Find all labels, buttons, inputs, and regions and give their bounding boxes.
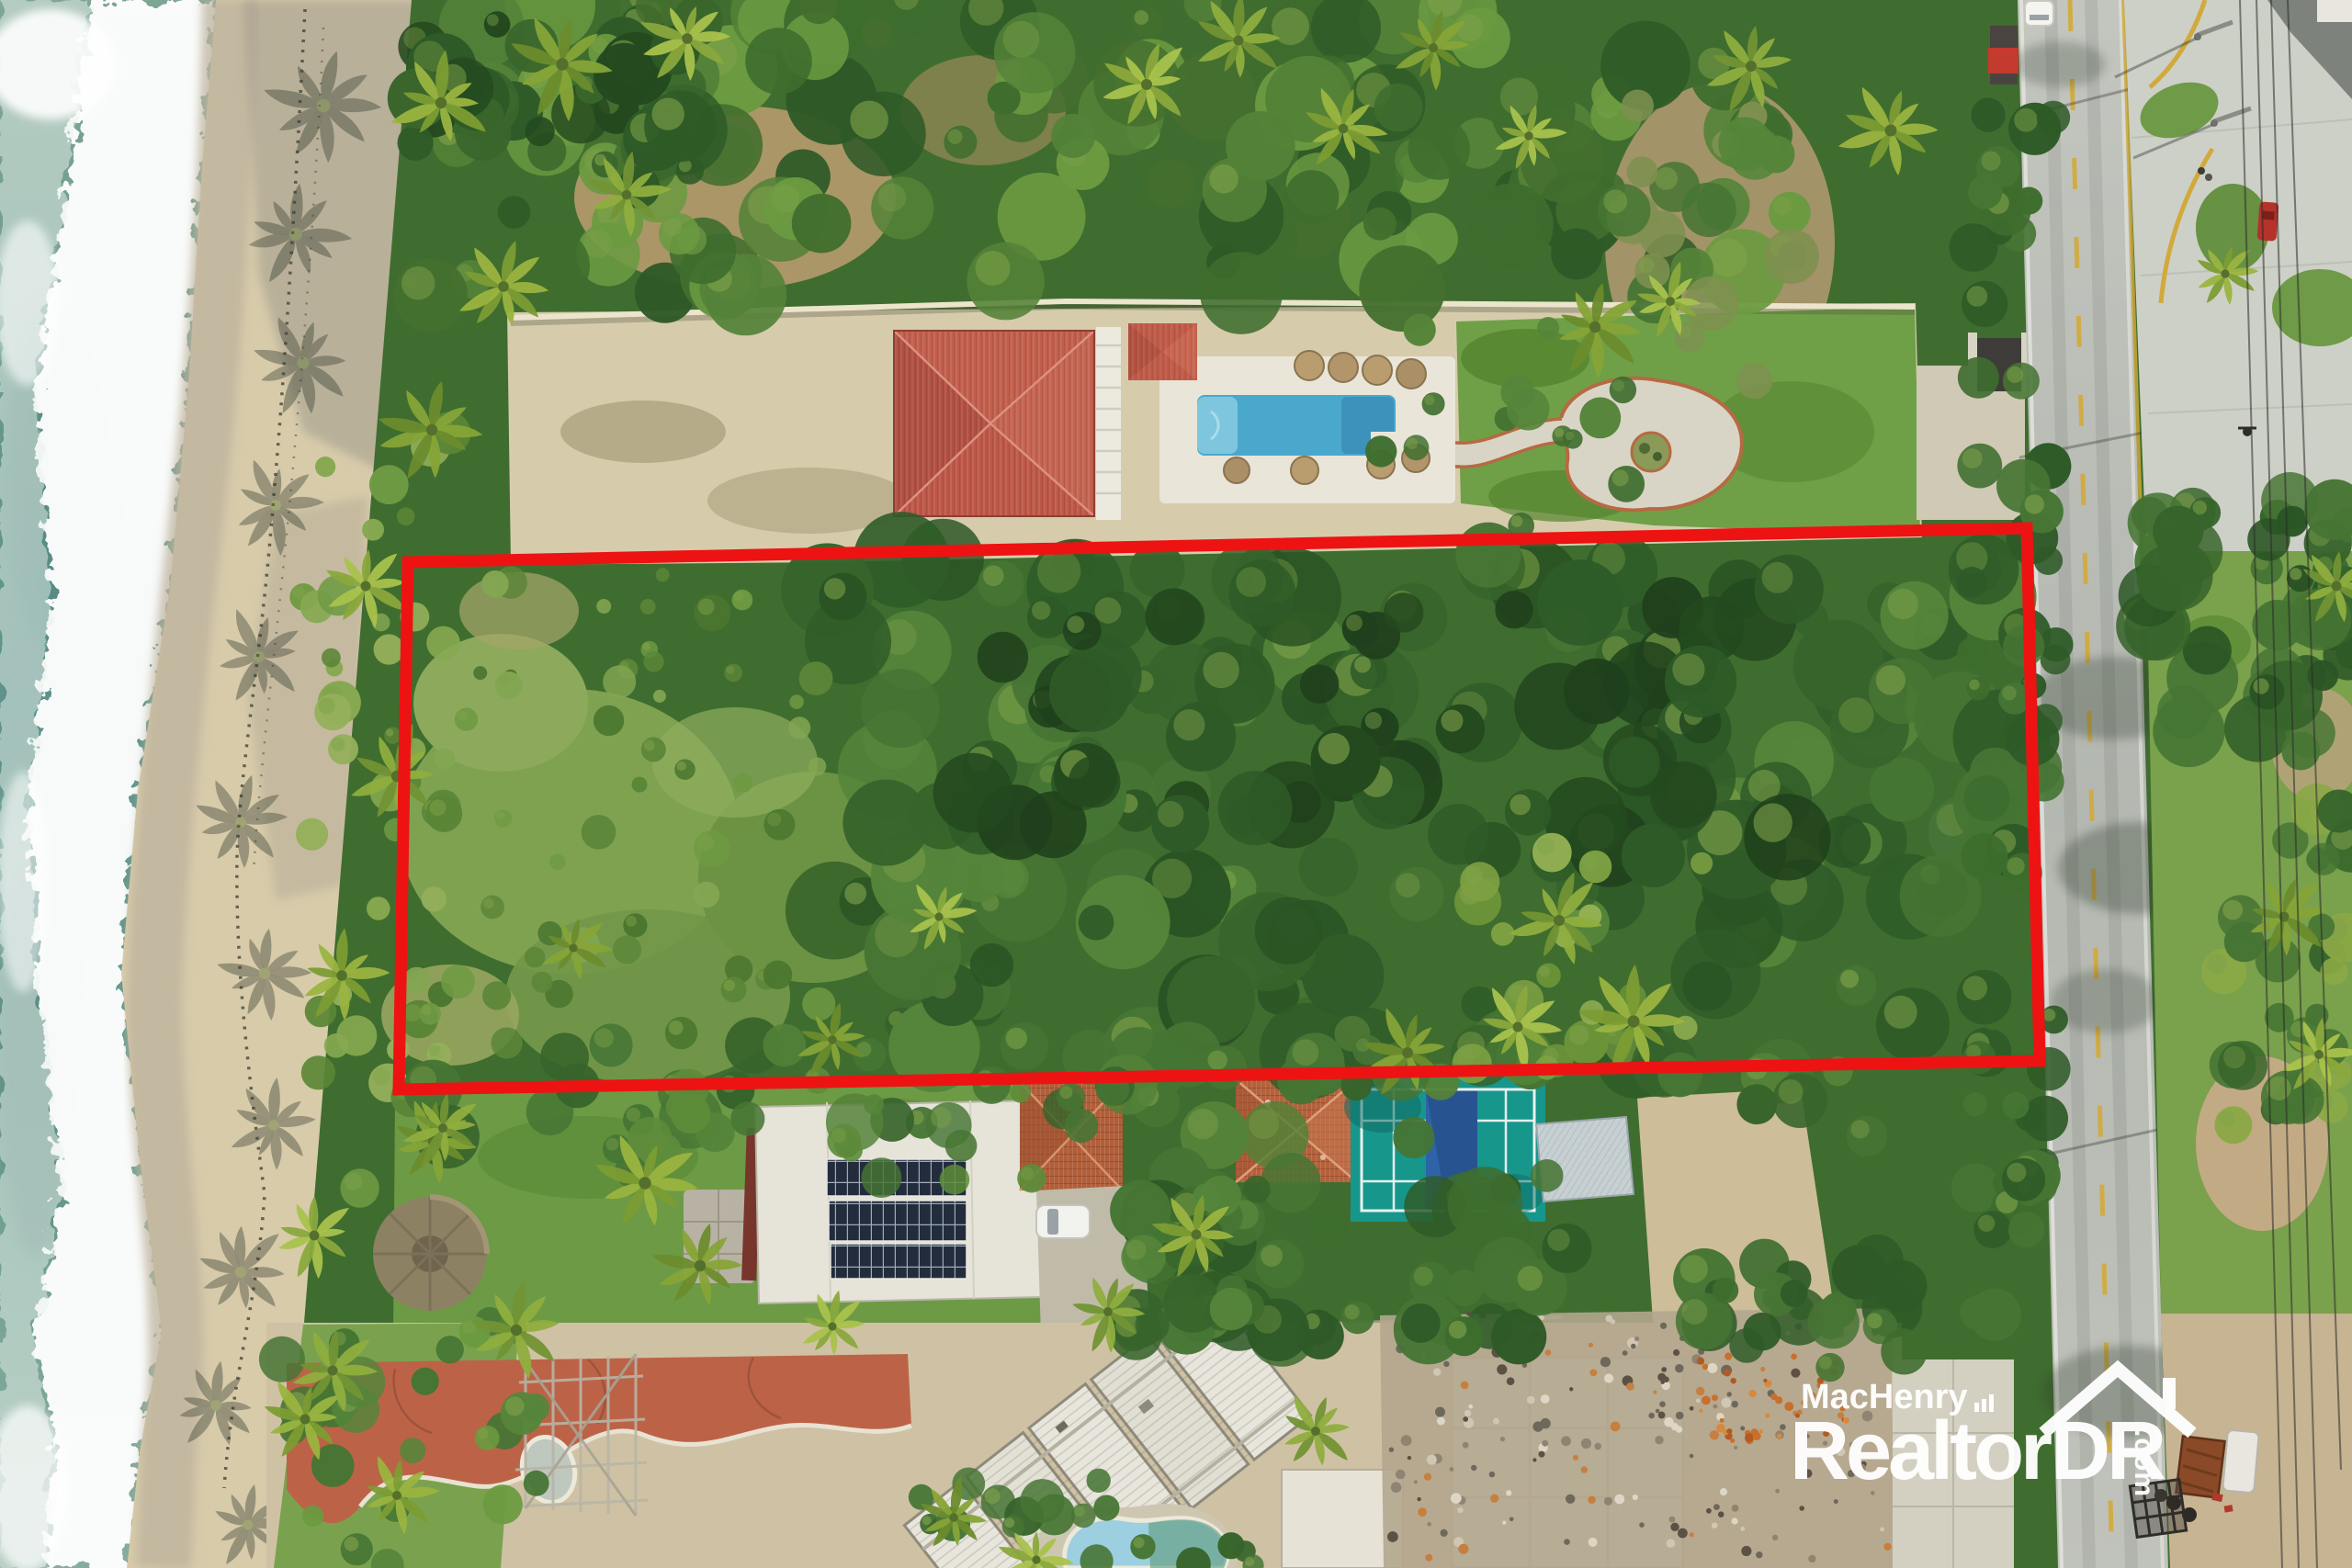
villa-walkway: [1096, 327, 1121, 520]
aerial-photo-canvas: [0, 0, 2352, 1568]
white-van: [2222, 1430, 2259, 1494]
dumpster: [2176, 1436, 2224, 1497]
watermark-tld: .com: [2128, 1429, 2159, 1497]
watermark-title-row: Realtor DR .com: [1790, 1418, 2163, 1484]
watermark-logo: MacHenry Realtor DR .com: [1790, 1378, 2163, 1484]
watermark-suffix-wrap: DR .com: [2051, 1418, 2163, 1484]
aerial-photo: MacHenry Realtor DR .com: [0, 0, 2352, 1568]
red-car: [2257, 201, 2279, 241]
white-car: [1036, 1205, 1090, 1238]
roadside-stall: [1988, 26, 2018, 85]
watermark-title: Realtor: [1790, 1418, 2049, 1484]
upper-estate: [507, 301, 2030, 565]
thatch-roof: [373, 1197, 487, 1311]
car-on-road: [2025, 1, 2053, 26]
house-roof-icon: [2036, 1359, 2199, 1438]
pavilion-red-roof: [1128, 323, 1197, 380]
villa-red-roof: [894, 331, 1094, 516]
